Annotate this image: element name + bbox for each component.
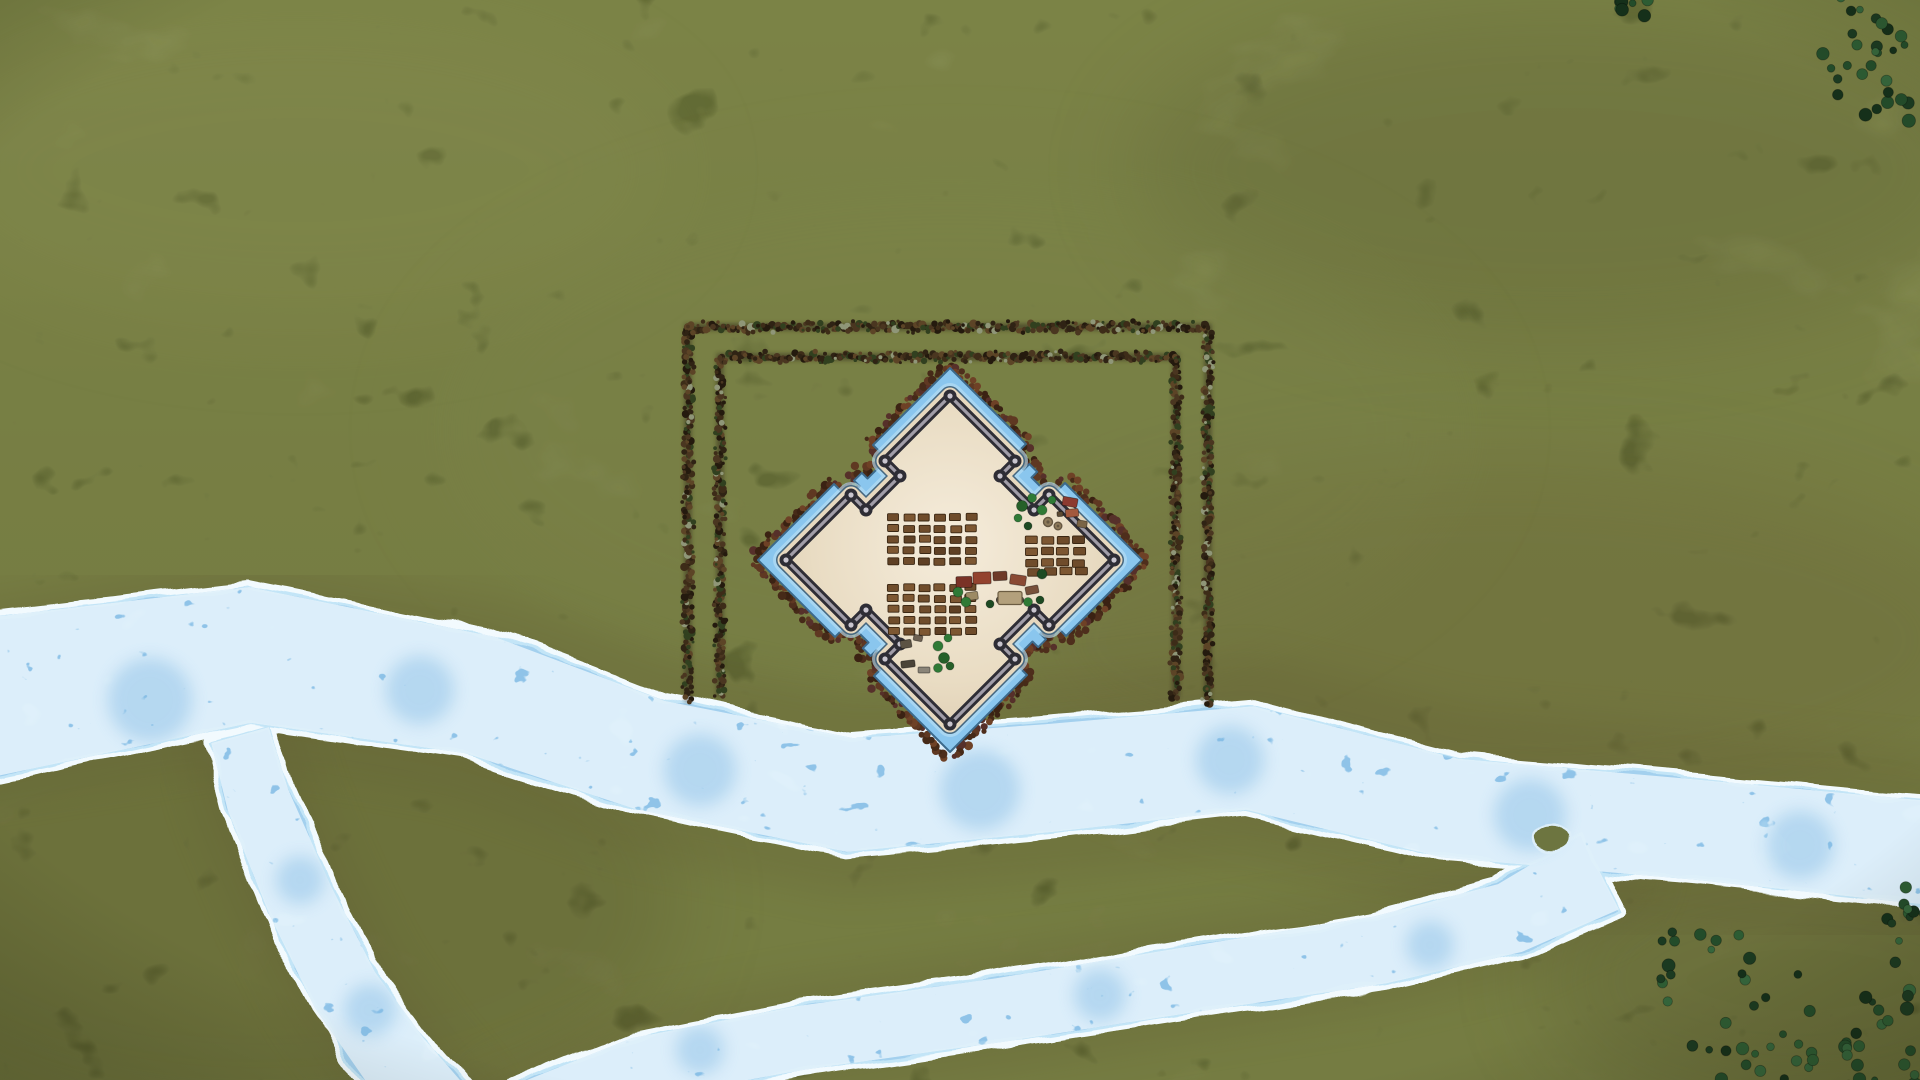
- vignette-overlay: [0, 0, 1920, 1080]
- battle-map[interactable]: [0, 0, 1920, 1080]
- map-canvas[interactable]: [0, 0, 1920, 1080]
